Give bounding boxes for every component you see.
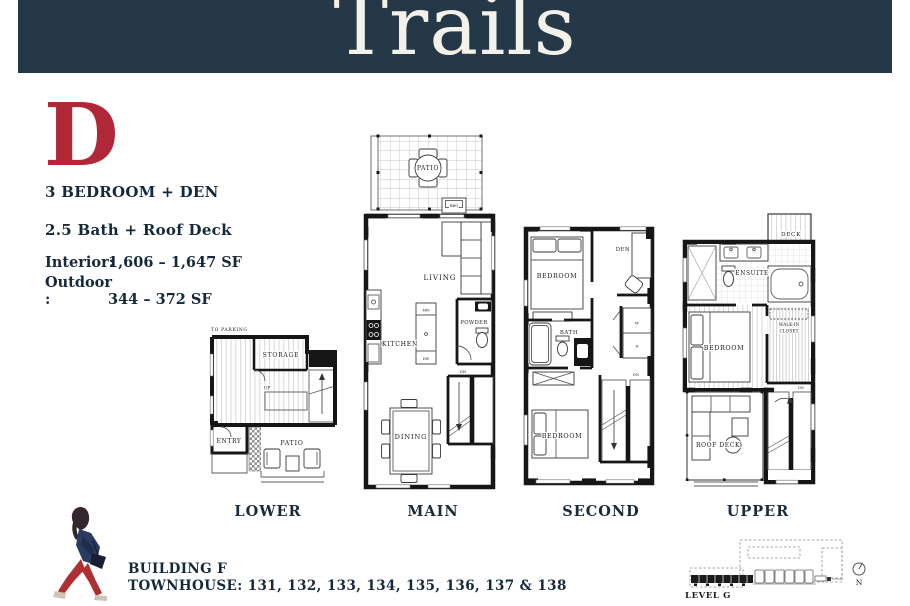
label-bedroom-top: BEDROOM [537, 272, 578, 280]
label-walkin-2: CLOSET [779, 330, 798, 335]
label-second-dn: DN [633, 373, 639, 377]
building-name: BUILDING F [128, 561, 567, 578]
label-lower-patio: PATIO [280, 440, 303, 447]
townhouse-list: TOWNHOUSE: 131, 132, 133, 134, 135, 136,… [128, 578, 567, 595]
label-dining: DINING [395, 433, 428, 441]
floor-name-lower: LOWER [198, 503, 338, 520]
masthead-band: Trails [18, 0, 892, 73]
label-main-patio: PATIO [417, 165, 439, 172]
floor-name-upper: UPPER [688, 503, 828, 520]
main-sofa [442, 222, 492, 294]
label-washer: W [635, 321, 639, 326]
floor-name-main: MAIN [363, 503, 503, 520]
label-deck: DECK [781, 232, 801, 238]
second-bedroom-bottom [532, 372, 588, 458]
outdoor-spec: Outdoor :344 – 372 SF [45, 274, 212, 308]
floorplan-main: PATIO BBQ LIVING KITCHEN MW DW POWDER DN… [362, 132, 502, 490]
label-living: LIVING [424, 274, 457, 282]
north-compass: N [853, 563, 865, 588]
label-bedroom-bottom: BEDROOM [542, 432, 583, 440]
north-label: N [856, 578, 863, 587]
site-building-f-highlight [691, 575, 753, 586]
outdoor-label: Outdoor : [45, 274, 108, 308]
building-info: BUILDING F TOWNHOUSE: 131, 132, 133, 134… [128, 561, 567, 595]
second-laundry [613, 308, 651, 358]
label-roof-deck: ROOF DECK [696, 442, 740, 449]
interior-value: 1,606 – 1,647 SF [108, 254, 242, 271]
floorplan-second: BEDROOM DEN BATH W D BEDROOM DN [522, 220, 657, 490]
label-dryer: D [635, 344, 638, 349]
label-powder: POWDER [460, 320, 488, 326]
walking-person-illustration [50, 503, 120, 603]
main-dining-set [382, 400, 441, 483]
label-main-dn: DN [460, 369, 467, 374]
main-kitchen [366, 290, 436, 364]
label-den: DEN [616, 247, 630, 253]
upper-roofdeck [686, 391, 763, 486]
interior-label: Interior: [45, 254, 108, 271]
upper-stairs [768, 392, 811, 480]
label-walkin-1: WALK-IN [779, 323, 800, 328]
site-key-plan: N LEVEL G [676, 520, 886, 604]
main-patio [371, 135, 483, 214]
label-to-parking: TO PARKING [211, 327, 248, 333]
floor-name-second: SECOND [531, 503, 671, 520]
label-storage: STORAGE [263, 352, 300, 359]
label-dw: DW [423, 357, 430, 361]
outdoor-value: 344 – 372 SF [108, 291, 212, 308]
label-bath: BATH [560, 330, 578, 336]
label-ensuite: ENSUITE [735, 270, 769, 277]
label-bbq: BBQ [450, 204, 458, 208]
label-entry: ENTRY [217, 438, 242, 445]
floorplan-upper: DECK ENSUITE WALK-IN CLOSET BEDROOM ROOF… [680, 208, 820, 490]
label-upper-dn: DN [798, 386, 804, 390]
site-other-units [755, 570, 826, 583]
plan-letter: D [44, 98, 119, 174]
label-mw: MW [423, 309, 430, 313]
floorplan-lower: TO PARKING STORAGE UP ENTRY PATIO [197, 310, 347, 495]
site-level-label: LEVEL G [685, 591, 731, 601]
interior-spec: Interior:1,606 – 1,647 SF [45, 254, 242, 271]
label-kitchen: KITCHEN [382, 341, 418, 348]
label-up: UP [264, 386, 271, 392]
plan-bath-line: 2.5 Bath + Roof Deck [45, 221, 232, 239]
label-upper-bedroom: BEDROOM [704, 344, 745, 352]
project-title: Trails [18, 0, 892, 68]
second-den [624, 233, 651, 294]
brochure-page: Trails D 3 BEDROOM + DEN 2.5 Bath + Roof… [0, 0, 910, 606]
plan-type-line: 3 BEDROOM + DEN [45, 183, 219, 201]
